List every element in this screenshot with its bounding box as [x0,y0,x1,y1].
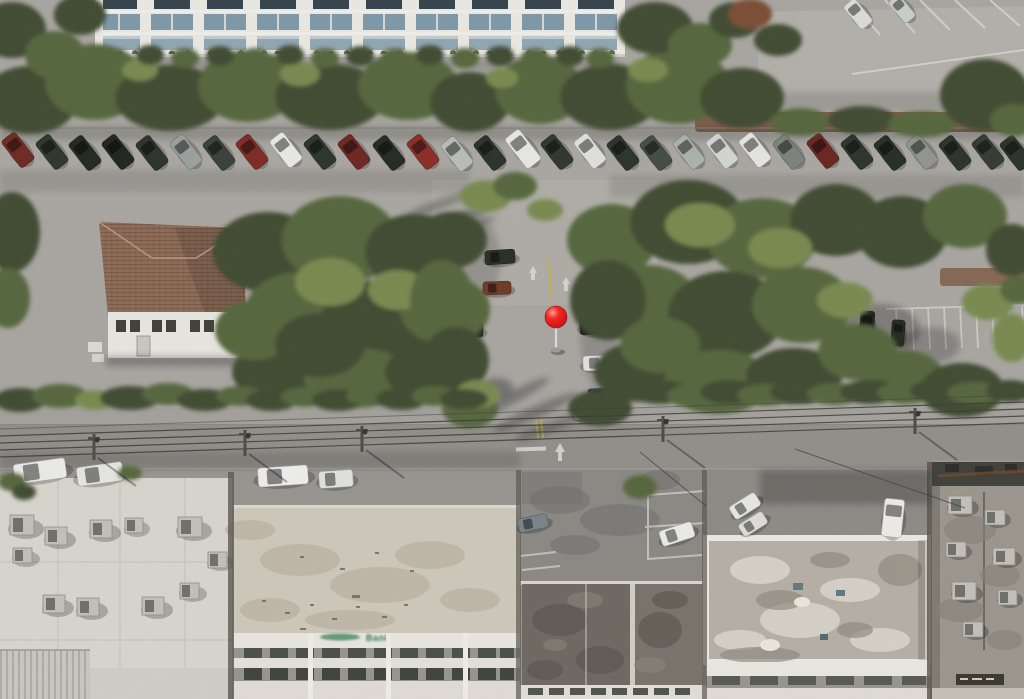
rust-colored-tree [728,0,772,29]
corrugated-roof [0,650,90,699]
dark-roof-building [520,470,706,699]
equipment-rooftop [932,460,1024,699]
small-storefront-sign [956,674,1004,685]
aerial-map-view[interactable]: Bank [0,0,1024,699]
house-door [137,336,150,356]
pin-head[interactable] [545,306,567,328]
white-hvac-roof-building [0,478,235,699]
